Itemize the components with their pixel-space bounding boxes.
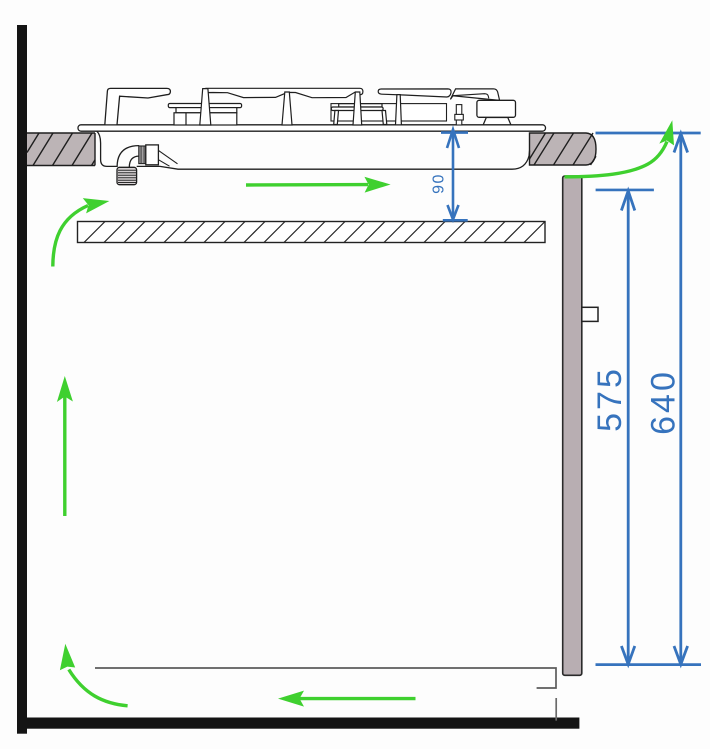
svg-text:640: 640 bbox=[645, 369, 683, 435]
svg-text:90: 90 bbox=[430, 173, 447, 194]
svg-text:575: 575 bbox=[591, 366, 629, 432]
